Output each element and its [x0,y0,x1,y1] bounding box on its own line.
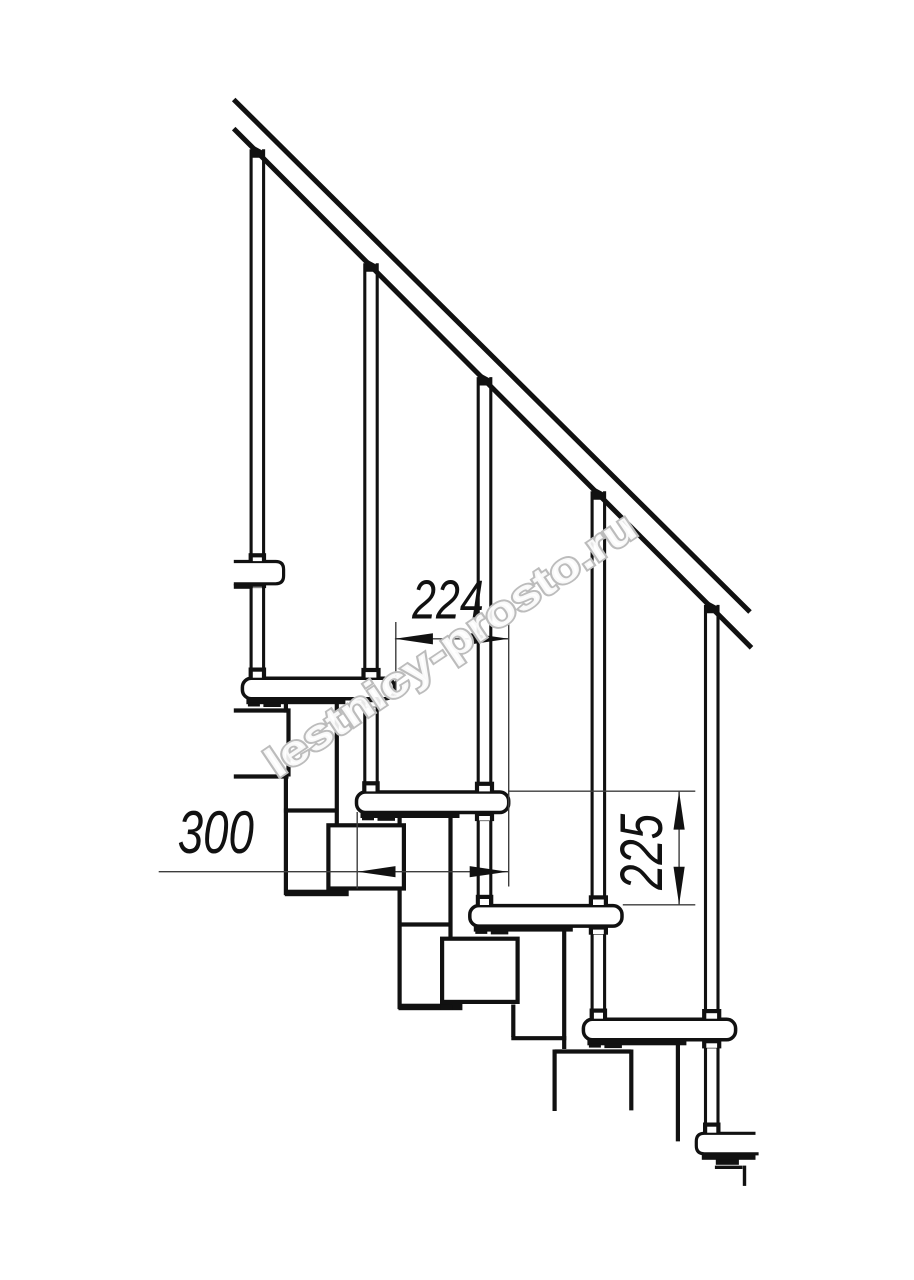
svg-text:225: 225 [609,814,675,891]
svg-text:300: 300 [178,800,254,866]
